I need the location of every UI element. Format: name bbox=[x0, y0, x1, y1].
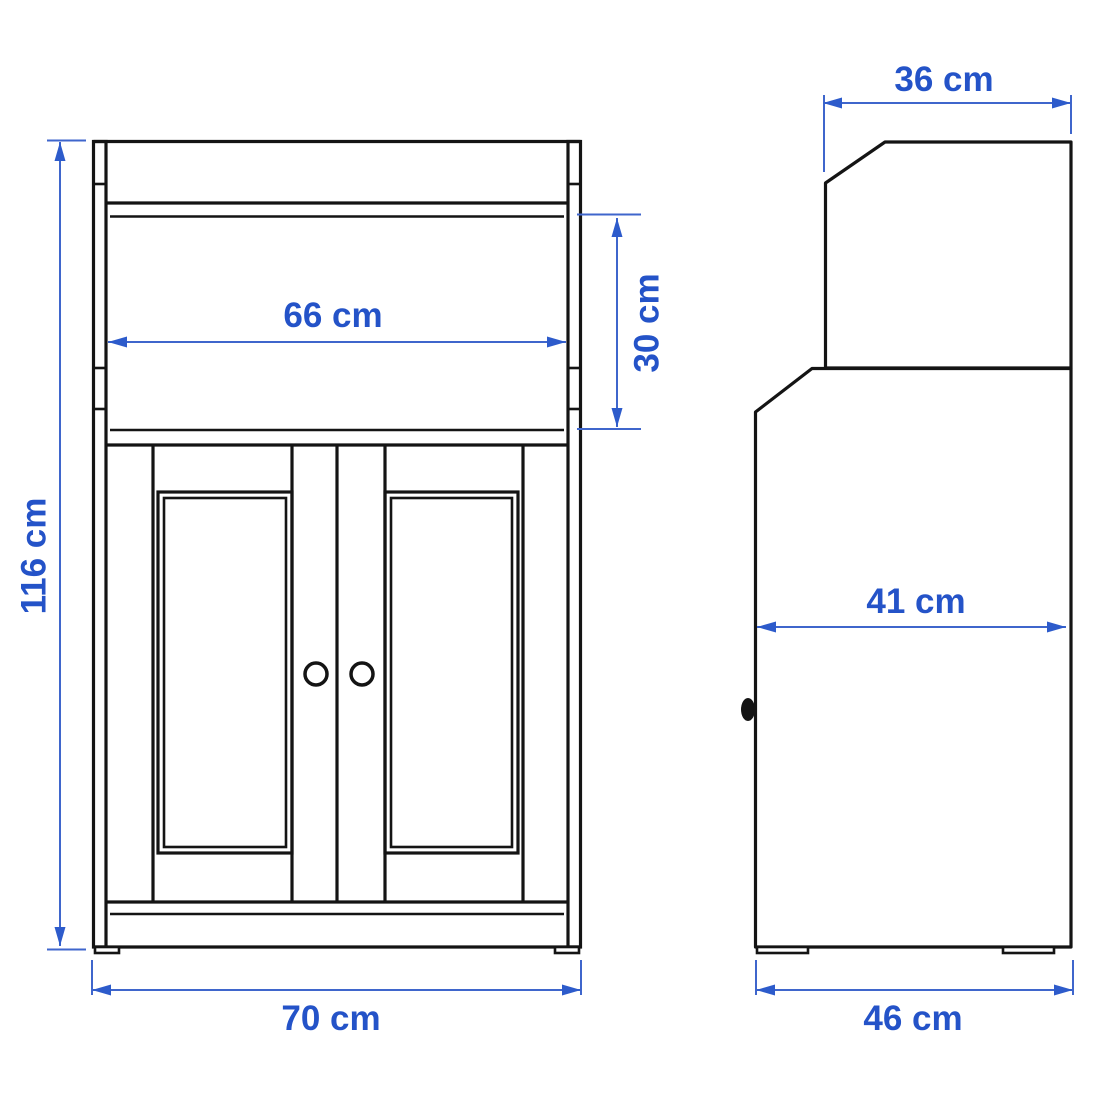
arrow-down-icon bbox=[55, 927, 66, 946]
door-frame-lines bbox=[153, 445, 523, 902]
front-left-foot bbox=[95, 947, 119, 953]
dimension-opening-height: 30 cm bbox=[577, 215, 666, 430]
dimension-label-inner-width: 66 cm bbox=[283, 296, 382, 335]
dimension-base-depth: 46 cm bbox=[756, 960, 1073, 1038]
dimension-overall-width: 70 cm bbox=[92, 960, 581, 1038]
technical-drawing-canvas: 116 cm 66 cm 30 cm 70 cm 36 cm bbox=[0, 0, 1100, 1100]
front-left-side-post bbox=[94, 142, 107, 948]
dimension-label-top-depth: 36 cm bbox=[894, 60, 993, 99]
side-back-foot bbox=[1003, 947, 1054, 953]
cabinet-dimension-diagram: 116 cm 66 cm 30 cm 70 cm 36 cm bbox=[0, 0, 1100, 1100]
front-right-side-post bbox=[568, 142, 581, 948]
dimension-label-overall-width: 70 cm bbox=[281, 999, 380, 1038]
side-front-foot bbox=[757, 947, 808, 953]
side-view bbox=[741, 142, 1071, 953]
left-door-panel bbox=[158, 492, 292, 853]
front-right-foot bbox=[555, 947, 579, 953]
dimension-total-height: 116 cm bbox=[14, 141, 86, 950]
dimension-label-height: 116 cm bbox=[14, 498, 53, 615]
side-door-knob bbox=[741, 698, 755, 721]
dimension-inner-width: 66 cm bbox=[108, 296, 566, 348]
dimension-label-mid-depth: 41 cm bbox=[866, 582, 965, 621]
left-door-knob bbox=[305, 663, 327, 685]
side-bottom-section bbox=[756, 369, 1072, 948]
arrow-right-icon bbox=[1054, 985, 1073, 996]
dimension-label-base-depth: 46 cm bbox=[863, 999, 962, 1038]
arrow-down-icon bbox=[612, 408, 623, 427]
dimension-label-opening-height: 30 cm bbox=[627, 273, 666, 372]
arrow-left-icon bbox=[92, 985, 111, 996]
arrow-up-icon bbox=[55, 142, 66, 161]
arrow-right-icon bbox=[547, 337, 566, 348]
arrow-right-icon bbox=[562, 985, 581, 996]
front-view bbox=[94, 142, 581, 954]
right-door-panel bbox=[385, 492, 518, 853]
arrow-up-icon bbox=[612, 218, 623, 237]
side-top-section bbox=[826, 142, 1072, 368]
right-door-knob bbox=[351, 663, 373, 685]
arrow-left-icon bbox=[756, 985, 775, 996]
arrow-right-icon bbox=[1052, 98, 1071, 109]
arrow-left-icon bbox=[108, 337, 127, 348]
arrow-left-icon bbox=[823, 98, 842, 109]
